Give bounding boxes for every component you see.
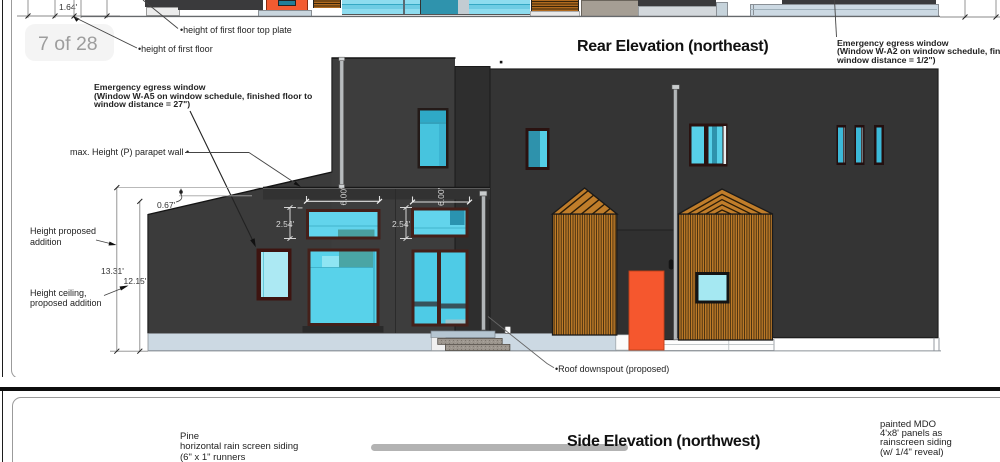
svg-text:6.00': 6.00' [339,187,349,206]
svg-text:6.00': 6.00' [436,187,446,206]
